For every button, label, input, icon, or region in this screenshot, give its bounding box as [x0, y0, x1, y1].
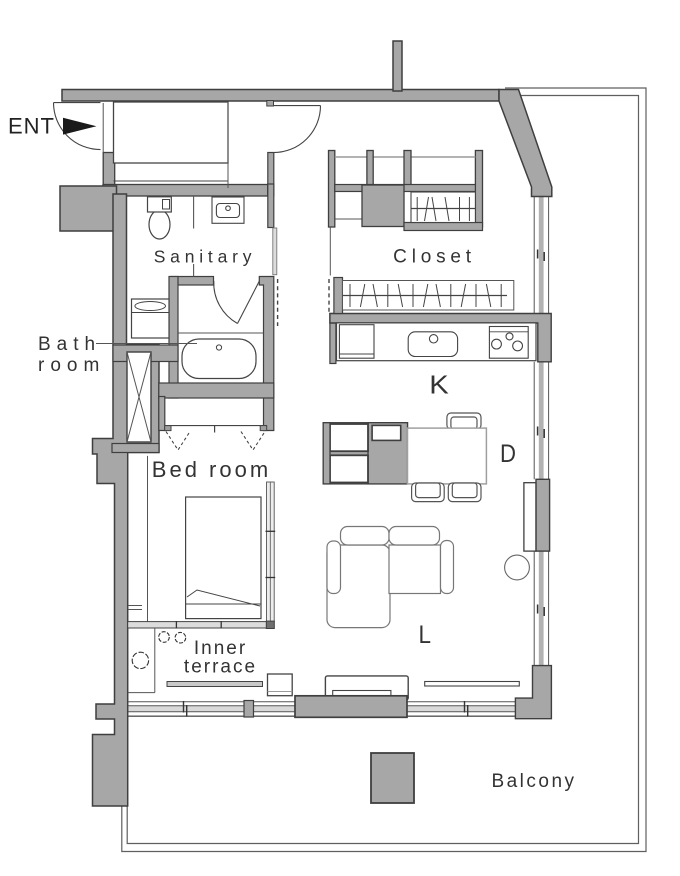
svg-text:terrace: terrace [184, 657, 257, 678]
svg-text:ENT: ENT [8, 114, 55, 139]
svg-text:K: K [429, 370, 449, 400]
svg-text:Balcony: Balcony [491, 771, 576, 792]
svg-text:Bath: Bath [38, 334, 101, 355]
svg-text:D: D [500, 440, 516, 468]
svg-text:room: room [38, 355, 105, 376]
svg-text:Bed room: Bed room [152, 457, 271, 482]
svg-text:L: L [418, 621, 431, 649]
svg-text:Closet: Closet [393, 247, 476, 268]
svg-text:Sanitary: Sanitary [154, 247, 257, 267]
